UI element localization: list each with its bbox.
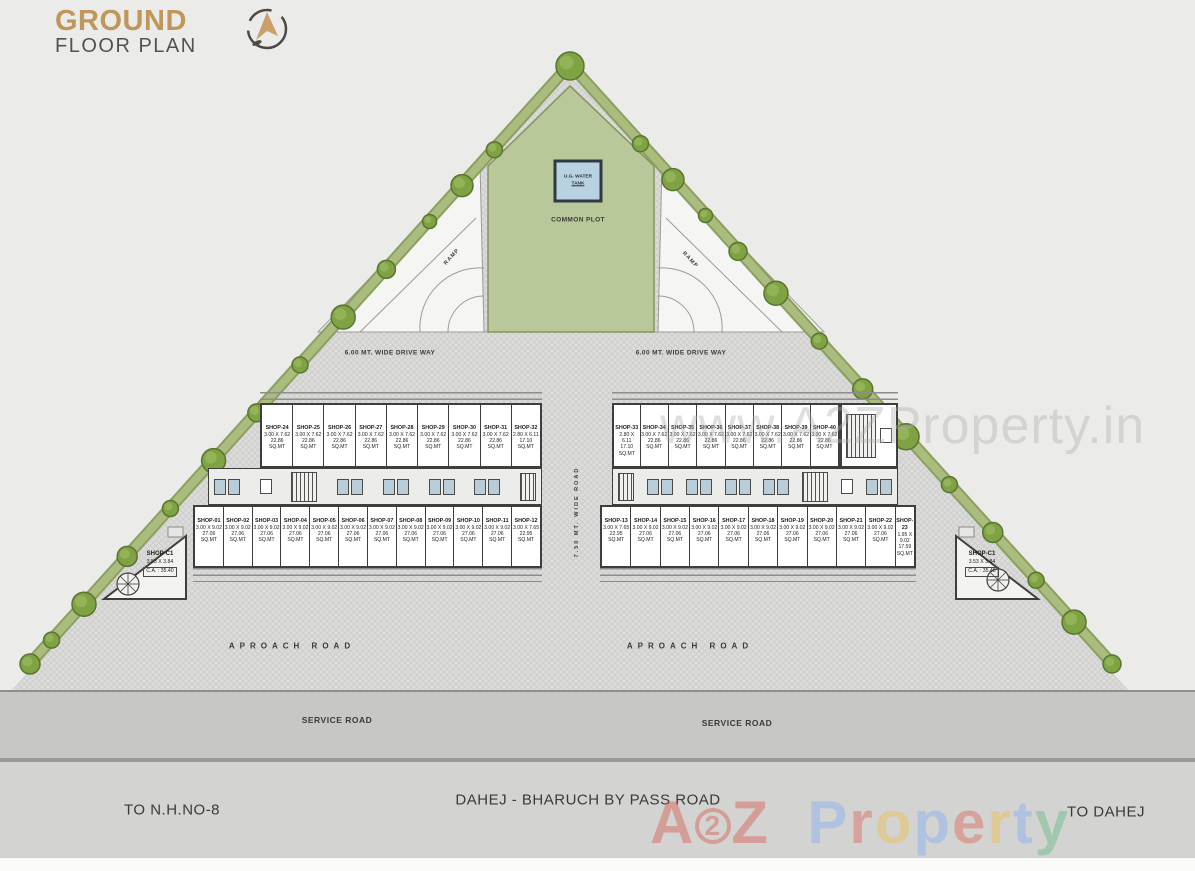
shop-cell: SHOP-093.00 X 9.0227.06SQ.MT	[425, 507, 454, 566]
toilet-room	[383, 479, 395, 495]
toilet-room	[429, 479, 441, 495]
page-title-line1: GROUND	[55, 6, 197, 36]
service-road-right-label: SERVICE ROAD	[702, 718, 773, 728]
lift-icon	[880, 428, 892, 443]
shop-cell: SHOP-193.00 X 9.0227.06SQ.MT	[777, 507, 806, 566]
driveway-right-label: 6.00 MT. WIDE DRIVE WAY	[636, 350, 727, 357]
shop-cell: SHOP-343.00 X 7.6222.86SQ.MT	[640, 405, 668, 466]
shop-cell: SHOP-153.00 X 9.0227.06SQ.MT	[660, 507, 689, 566]
floor-plan-canvas: GROUND FLOOR PLAN U.G. WATER TANK COMMON…	[0, 0, 1195, 871]
tree-highlight	[731, 245, 740, 254]
shop-cell: SHOP-103.00 X 9.0227.06SQ.MT	[453, 507, 482, 566]
shop-cell: SHOP-183.00 X 9.0227.06SQ.MT	[748, 507, 777, 566]
tree-highlight	[985, 525, 995, 535]
shop-cell: SHOP-293.00 X 7.6222.86SQ.MT	[417, 405, 448, 466]
tree-highlight	[164, 503, 172, 511]
to-nh-label: TO N.H.NO-8	[124, 802, 220, 819]
shop-cell: SHOP-013.00 X 9.0227.06SQ.MT	[195, 507, 223, 566]
shop-cell: SHOP-353.00 X 7.6222.86SQ.MT	[668, 405, 696, 466]
bypass-road-label: DAHEJ - BHARUCH BY PASS ROAD	[455, 792, 720, 809]
shop-cell: SHOP-063.00 X 9.0227.06SQ.MT	[338, 507, 367, 566]
staircase-icon	[520, 473, 536, 501]
toilet-room	[763, 479, 775, 495]
bottom-margin	[0, 858, 1195, 871]
tree-highlight	[1065, 613, 1077, 625]
shop-cell: SHOP-322.80 X 6.1117.10SQ.MT	[511, 405, 540, 466]
tree-highlight	[634, 138, 642, 146]
shop-cell: SHOP-383.00 X 7.6222.86SQ.MT	[753, 405, 781, 466]
shop-cell: SHOP-083.00 X 9.0227.06SQ.MT	[396, 507, 425, 566]
shop-cell: SHOP-053.00 X 9.0227.06SQ.MT	[309, 507, 338, 566]
tree-highlight	[488, 144, 496, 152]
lift-icon	[841, 479, 853, 494]
shop-cell: SHOP-113.00 X 9.0227.06SQ.MT	[482, 507, 511, 566]
tree-highlight	[250, 406, 259, 415]
toilet-room	[351, 479, 363, 495]
tree-highlight	[943, 479, 951, 487]
shop-cell: SHOP-403.00 X 7.6222.86SQ.MT	[810, 405, 838, 466]
toilet-room	[228, 479, 240, 495]
toilet-room	[397, 479, 409, 495]
left-block-bottom-steps	[193, 568, 542, 582]
toilet-room	[214, 479, 226, 495]
toilet-room	[700, 479, 712, 495]
page-title-line2: FLOOR PLAN	[55, 36, 197, 57]
toilet-room	[647, 479, 659, 495]
toilet-room	[474, 479, 486, 495]
toilet-room	[739, 479, 751, 495]
right-block-top-row: SHOP-332.80 X 6.1117.10SQ.MTSHOP-343.00 …	[612, 403, 840, 468]
toilet-room	[725, 479, 737, 495]
shop-cell: SHOP-123.00 X 7.6522.95SQ.MT	[511, 507, 540, 566]
shop-cell: SHOP-273.00 X 7.6222.86SQ.MT	[355, 405, 386, 466]
left-block-bottom-row: SHOP-013.00 X 9.0227.06SQ.MTSHOP-023.00 …	[193, 505, 542, 568]
shop-cell: SHOP-283.00 X 7.6222.86SQ.MT	[386, 405, 417, 466]
tree-highlight	[855, 381, 865, 391]
shop-cell: SHOP-143.00 X 9.0227.06SQ.MT	[630, 507, 659, 566]
tree-highlight	[23, 657, 33, 667]
tree-highlight	[665, 171, 676, 182]
right-block-bottom-row: SHOP-133.00 X 7.6522.95SQ.MTSHOP-143.00 …	[600, 505, 916, 568]
tree-highlight	[424, 216, 431, 223]
tree-highlight	[700, 210, 707, 217]
shop-cell: SHOP-023.00 X 9.0227.06SQ.MT	[223, 507, 252, 566]
toilet-room	[488, 479, 500, 495]
tree-highlight	[380, 263, 389, 272]
left-block-corridor-band	[208, 468, 542, 505]
shop-cell: SHOP-332.80 X 6.1117.10SQ.MT	[614, 405, 640, 466]
corner-shop-right-label: SHOP-C1 3.53 X 3.84 C.A. : 35.40	[958, 550, 1006, 577]
tree-highlight	[767, 284, 779, 296]
shop-cell: SHOP-203.00 X 9.0227.06SQ.MT	[807, 507, 836, 566]
shop-cell: SHOP-363.00 X 7.6222.86SQ.MT	[696, 405, 724, 466]
toilet-room	[661, 479, 673, 495]
toilet-room	[777, 479, 789, 495]
right-block-bottom-steps	[600, 568, 916, 582]
toilet-room	[866, 479, 878, 495]
page-title: GROUND FLOOR PLAN	[55, 6, 197, 57]
shop-cell: SHOP-133.00 X 7.6522.95SQ.MT	[602, 507, 630, 566]
toilet-room	[443, 479, 455, 495]
staircase-icon	[618, 473, 634, 501]
shop-cell: SHOP-373.00 X 7.6222.86SQ.MT	[725, 405, 753, 466]
to-dahej-label: TO DAHEJ	[1067, 804, 1145, 821]
left-block-top-row: SHOP-243.00 X 7.6222.86SQ.MTSHOP-253.00 …	[260, 403, 542, 468]
tree-highlight	[334, 308, 346, 320]
shop-cell: SHOP-253.00 X 7.6222.86SQ.MT	[292, 405, 323, 466]
shop-cell: SHOP-243.00 X 7.6222.86SQ.MT	[262, 405, 292, 466]
right-block-top-steps	[612, 392, 898, 403]
approach-road-left-label: APROACH ROAD	[229, 642, 355, 651]
left-block-top-steps	[260, 392, 542, 403]
tree-highlight	[1105, 657, 1114, 666]
water-tank-label: U.G. WATER TANK	[564, 174, 592, 187]
shop-cell: SHOP-163.00 X 9.0227.06SQ.MT	[689, 507, 718, 566]
shop-cell: SHOP-223.00 X 9.0227.06SQ.MT	[865, 507, 894, 566]
shop-cell: SHOP-213.00 X 9.0227.06SQ.MT	[836, 507, 865, 566]
service-road-left-label: SERVICE ROAD	[302, 715, 373, 725]
staircase-icon	[802, 472, 828, 502]
tree-highlight	[896, 427, 909, 440]
shop-cell: SHOP-073.00 X 9.0227.06SQ.MT	[367, 507, 396, 566]
tree-highlight	[813, 335, 821, 343]
middle-road-label: 7.50 MT. WIDE ROAD	[574, 467, 580, 558]
tree-highlight	[1030, 574, 1038, 582]
driveway-left-label: 6.00 MT. WIDE DRIVE WAY	[345, 350, 436, 357]
tree-highlight	[46, 634, 54, 642]
tree-highlight	[120, 549, 130, 559]
shop-cell: SHOP-033.00 X 9.0227.06SQ.MT	[252, 507, 281, 566]
shop-cell: SHOP-263.00 X 7.6222.86SQ.MT	[323, 405, 354, 466]
brand-logo-icon	[243, 5, 291, 53]
corner-shop-left-label: SHOP-C1 3.53 X 3.84 C.A. : 35.40	[136, 550, 184, 577]
service-road-band	[0, 690, 1195, 758]
toilet-room	[880, 479, 892, 495]
right-block-stair-lift	[840, 403, 898, 468]
toilet-room	[337, 479, 349, 495]
shop-cell: SHOP-303.00 X 7.6222.86SQ.MT	[448, 405, 479, 466]
tree-highlight	[294, 359, 302, 367]
shop-cell: SHOP-231.95 X 9.0217.59SQ.MT	[895, 507, 914, 566]
right-block-corridor-band	[612, 468, 898, 505]
tree-highlight	[454, 177, 465, 188]
shop-cell: SHOP-393.00 X 7.6222.86SQ.MT	[781, 405, 809, 466]
shop-cell: SHOP-043.00 X 9.0227.06SQ.MT	[280, 507, 309, 566]
shop-cell: SHOP-313.00 X 7.6222.86SQ.MT	[480, 405, 511, 466]
tree-highlight	[560, 56, 574, 70]
approach-road-right-label: APROACH ROAD	[627, 642, 753, 651]
toilet-room	[686, 479, 698, 495]
common-plot-label: COMMON PLOT	[551, 217, 605, 224]
staircase-icon	[291, 472, 317, 502]
shop-cell: SHOP-173.00 X 9.0227.06SQ.MT	[718, 507, 747, 566]
tree-highlight	[75, 595, 87, 607]
lift-icon	[260, 479, 272, 494]
staircase-icon	[846, 414, 876, 458]
tree-highlight	[205, 452, 217, 464]
